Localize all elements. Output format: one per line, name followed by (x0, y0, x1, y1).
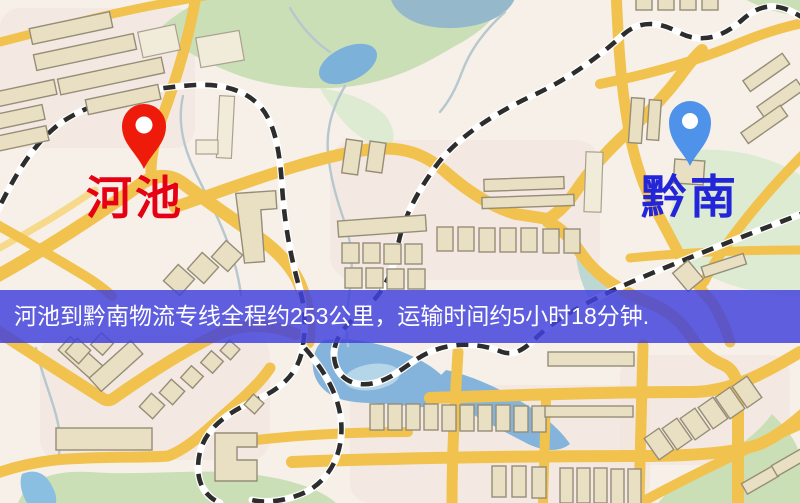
origin-pin-icon (122, 104, 166, 169)
route-banner: 河池到黔南物流专线全程约253公里，运输时间约5小时18分钟. (0, 290, 800, 343)
route-banner-text: 河池到黔南物流专线全程约253公里，运输时间约5小时18分钟. (14, 303, 649, 329)
logistics-route-map: 河池 黔南 河池到黔南物流专线全程约253公里，运输时间约5小时18分钟. (0, 0, 800, 503)
destination-label: 黔南 (641, 174, 739, 220)
origin-label: 河池 (86, 175, 184, 221)
map-background (0, 0, 800, 503)
